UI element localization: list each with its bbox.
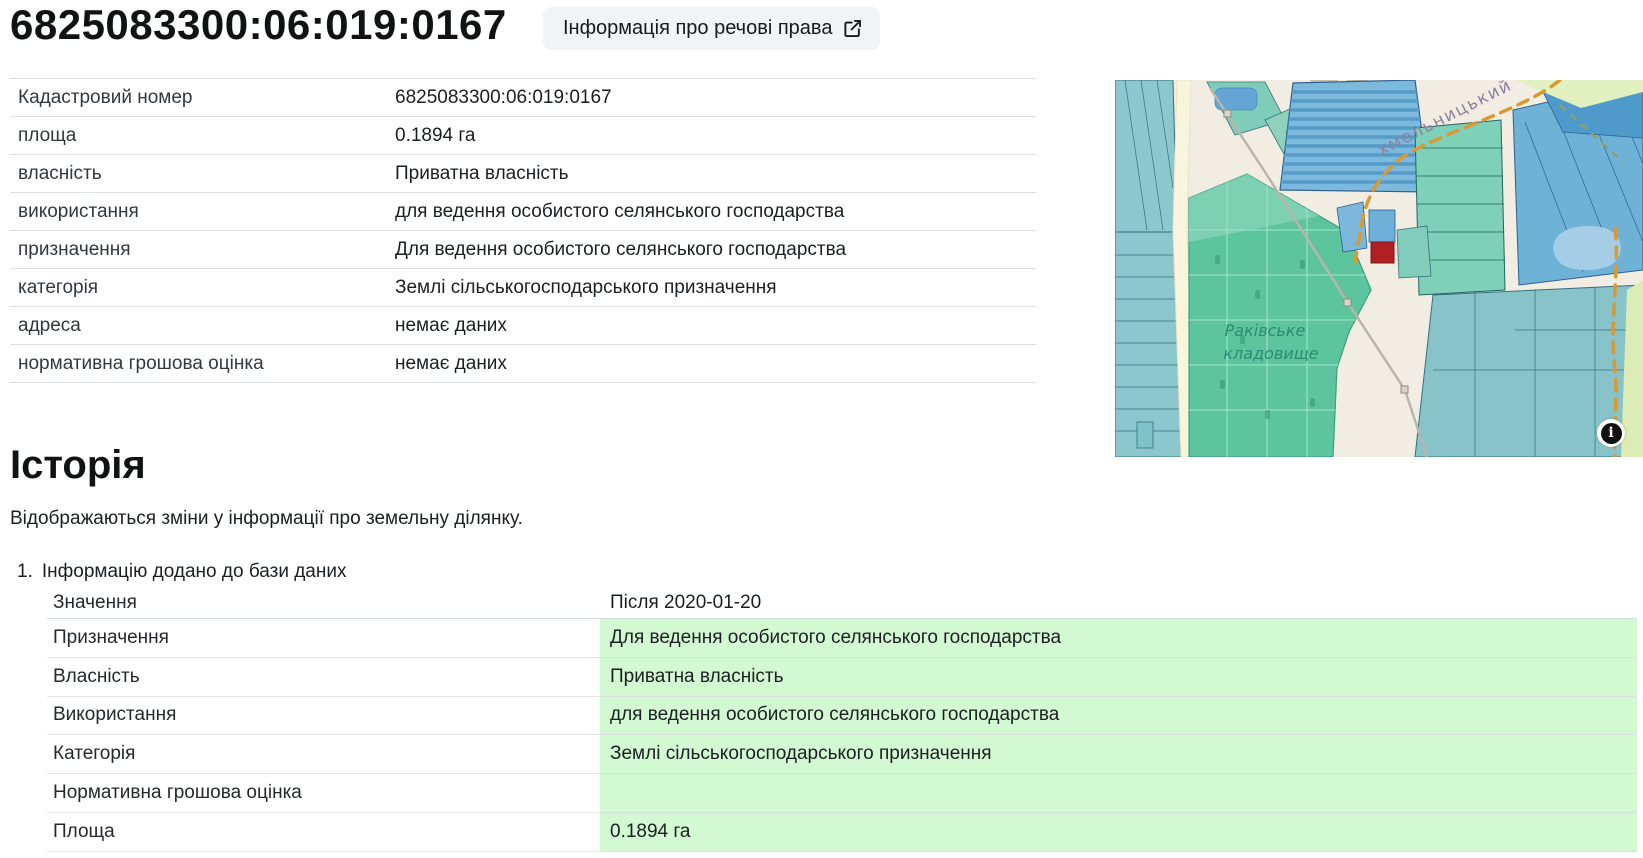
table-row: використання для ведення особистого селя… xyxy=(10,193,1037,231)
table-row: призначення Для ведення особистого селян… xyxy=(10,231,1037,269)
row-value: для ведення особистого селянського госпо… xyxy=(600,697,1637,736)
row-label: Значення xyxy=(47,588,600,618)
table-row: категорія Землі сільськогосподарського п… xyxy=(10,269,1037,307)
row-label: Призначення xyxy=(47,619,600,658)
table-row: Використання для ведення особистого селя… xyxy=(47,697,1637,736)
row-label: нормативна грошова оцінка xyxy=(10,353,395,375)
page-title: 6825083300:06:019:0167 xyxy=(10,0,507,50)
table-row: Площа 0.1894 га xyxy=(47,813,1637,852)
table-row: адреса немає даних xyxy=(10,307,1037,345)
table-row: Категорія Землі сільськогосподарського п… xyxy=(47,735,1637,774)
history-entry-label: Інформацію додано до бази даних xyxy=(42,561,347,583)
table-row: власність Приватна власність xyxy=(10,155,1037,193)
table-row: нормативна грошова оцінка немає даних xyxy=(10,345,1037,383)
row-value: Землі сільськогосподарського призначення xyxy=(600,735,1637,774)
row-label: Нормативна грошова оцінка xyxy=(47,774,600,813)
history-entry-title: 1. Інформацію додано до бази даних xyxy=(17,561,346,583)
history-description: Відображаються зміни у інформації про зе… xyxy=(10,508,523,530)
external-link-icon xyxy=(843,19,862,38)
row-label: площа xyxy=(10,125,395,147)
history-heading: Історія xyxy=(10,441,146,489)
row-value: Після 2020-01-20 xyxy=(600,588,1637,618)
row-value: Для ведення особистого селянського госпо… xyxy=(395,239,1037,261)
cemetery-label-line1: Раківське xyxy=(1225,321,1306,340)
info-icon: i xyxy=(1601,423,1622,444)
row-value: для ведення особистого селянського госпо… xyxy=(395,201,1037,223)
map-pond xyxy=(1553,226,1621,270)
property-rights-button-label: Інформація про речові права xyxy=(563,17,832,40)
row-label: Використання xyxy=(47,697,600,736)
cemetery-label-line2: кладовище xyxy=(1223,344,1318,363)
table-row: Кадастровий номер 6825083300:06:019:0167 xyxy=(10,79,1037,117)
history-entry-index: 1. xyxy=(17,561,33,583)
row-value: Для ведення особистого селянського госпо… xyxy=(600,619,1637,658)
history-header-row: Значення Після 2020-01-20 xyxy=(47,588,1637,619)
row-value: 0.1894 га xyxy=(395,125,1037,147)
map-parcels-right-blue xyxy=(1513,80,1643,285)
table-row: Нормативна грошова оцінка xyxy=(47,774,1637,813)
selected-parcel-highlight xyxy=(1371,242,1394,263)
parcel-map[interactable]: Раківське кладовище хмельницький i xyxy=(1115,80,1643,457)
row-label: адреса xyxy=(10,315,395,337)
row-label: Площа xyxy=(47,813,600,852)
property-rights-button[interactable]: Інформація про речові права xyxy=(543,7,880,50)
map-attribution-button[interactable]: i xyxy=(1597,419,1625,447)
row-value: немає даних xyxy=(395,315,1037,337)
row-label: Власність xyxy=(47,658,600,697)
table-row: площа 0.1894 га xyxy=(10,117,1037,155)
row-value: Приватна власність xyxy=(600,658,1637,697)
map-parcels-left xyxy=(1115,80,1181,457)
row-label: призначення xyxy=(10,239,395,261)
row-value xyxy=(600,774,1637,813)
history-table: Значення Після 2020-01-20 Призначення Дл… xyxy=(47,588,1637,852)
row-label: Кадастровий номер xyxy=(10,87,395,109)
parcel-details-table: Кадастровий номер 6825083300:06:019:0167… xyxy=(10,78,1037,383)
row-value: немає даних xyxy=(395,353,1037,375)
map-canvas: Раківське кладовище хмельницький xyxy=(1115,80,1643,457)
parcel-page: 6825083300:06:019:0167 Інформація про ре… xyxy=(0,0,1643,858)
row-label: Категорія xyxy=(47,735,600,774)
row-value: Землі сільськогосподарського призначення xyxy=(395,277,1037,299)
row-value: 0.1894 га xyxy=(600,813,1637,852)
row-label: використання xyxy=(10,201,395,223)
row-label: категорія xyxy=(10,277,395,299)
row-value: 6825083300:06:019:0167 xyxy=(395,87,1037,109)
table-row: Власність Приватна власність xyxy=(47,658,1637,697)
row-value: Приватна власність xyxy=(395,163,1037,185)
table-row: Призначення Для ведення особистого селян… xyxy=(47,619,1637,658)
row-label: власність xyxy=(10,163,395,185)
